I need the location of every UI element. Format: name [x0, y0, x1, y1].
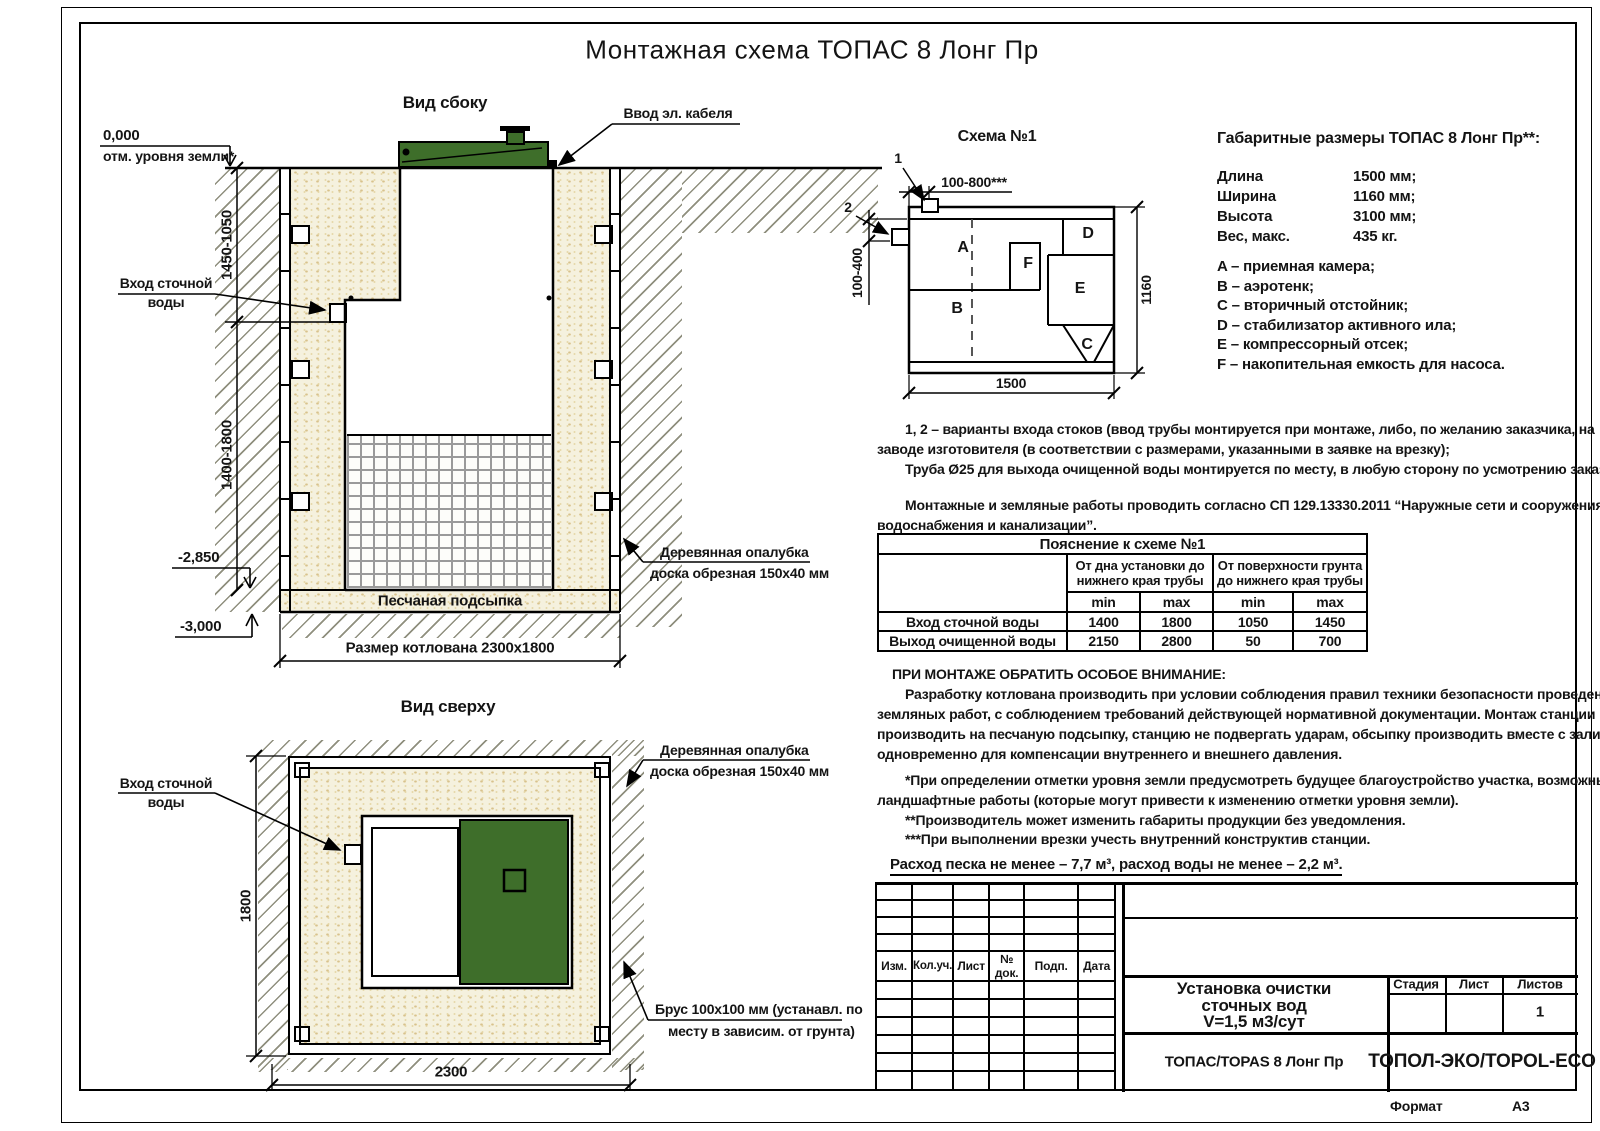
title-block-vline — [1445, 975, 1447, 1032]
dim-upper: 1450-1050 — [219, 210, 236, 280]
tv-beam-label: месту в зависим. от грунта) — [668, 1023, 855, 1039]
spec-label: Длина — [1217, 168, 1263, 185]
legend-item: D – стабилизатор активного ила; — [1217, 317, 1456, 334]
legend-item: B – аэротенк; — [1217, 278, 1314, 295]
drawing-sheet: Монтажная схема ТОПАС 8 Лонг Пр Пояснени… — [0, 0, 1600, 1131]
stage-header: Стадия — [1393, 977, 1439, 992]
schema-marker-1: 1 — [894, 150, 902, 166]
tv-dim-width: 2300 — [435, 1064, 468, 1081]
spec-label: Вес, макс. — [1217, 228, 1290, 245]
compartment-f: F — [1023, 255, 1033, 273]
legend-item: F – накопительная емкость для насоса. — [1217, 356, 1505, 373]
company-name: ТОПОЛ-ЭКО/TOPOL-ECO — [1368, 1051, 1596, 1073]
title-block-line — [1122, 917, 1578, 919]
attention-line: земляных работ, с соблюдением требований… — [877, 706, 1595, 722]
title-block-top-line — [875, 882, 1578, 885]
attention-line: Разработку котлована производить при усл… — [905, 686, 1600, 702]
level-mid: -2,850 — [178, 549, 219, 566]
doc-title-line: V=1,5 м3/сут — [1203, 1012, 1304, 1032]
schema-dim-top: 100-800*** — [941, 174, 1007, 190]
bedding-label: Песчаная подсыпка — [378, 593, 522, 610]
legend-item: E – компрессорный отсек; — [1217, 336, 1408, 353]
footnote-line: *При определении отметки уровня земли пр… — [905, 772, 1600, 788]
spec-value: 1160 мм; — [1353, 188, 1415, 205]
model-name: ТОПАС/TOPAS 8 Лонг Пр — [1165, 1054, 1344, 1071]
formwork-label: Деревянная опалубка — [660, 544, 809, 560]
note-line: Труба Ø25 для выхода очищенной воды монт… — [905, 461, 1600, 477]
tv-inlet-label: воды — [148, 794, 185, 810]
compartment-b: B — [951, 300, 962, 318]
note-line: водоснабжения и канализации”. — [877, 517, 1097, 533]
attention-line: производить на песчаную подсыпку, станци… — [877, 726, 1600, 742]
legend-item: C – вторичный отстойник; — [1217, 297, 1408, 314]
page-title: Монтажная схема ТОПАС 8 Лонг Пр — [585, 35, 1038, 66]
attention-line: одновременно для компенсации внутреннего… — [877, 746, 1342, 762]
title-block-line — [1122, 1032, 1578, 1035]
tv-beam-label: Брус 100x100 мм (устанавл. по — [655, 1001, 863, 1017]
schema-title: Схема №1 — [958, 128, 1037, 146]
specs-heading: Габаритные размеры ТОПАС 8 Лонг Пр**: — [1217, 130, 1540, 148]
formwork-label: доска обрезная 150x40 мм — [650, 565, 829, 581]
compartment-d: D — [1082, 225, 1093, 243]
tv-inlet-label: Вход сточной — [120, 775, 213, 791]
spec-label: Ширина — [1217, 188, 1276, 205]
footnote-line: ландшафтные работы (которые могут привес… — [877, 792, 1459, 808]
footnote-line: **Производитель может изменить габариты … — [905, 812, 1406, 828]
sheet-header: Лист — [1459, 977, 1489, 992]
schema-dim-right: 1160 — [1138, 275, 1154, 305]
format-label: Формат — [1390, 1098, 1442, 1114]
compartment-e: E — [1075, 280, 1085, 298]
ground-note: отм. уровня земли* — [103, 148, 234, 164]
schema-dim-left: 100-400 — [849, 248, 865, 298]
compartment-a: A — [957, 239, 968, 257]
spec-value: 1500 мм; — [1353, 168, 1416, 185]
top-view-title: Вид сверху — [401, 697, 496, 717]
legend-item: A – приемная камера; — [1217, 258, 1375, 275]
cable-label: Ввод эл. кабеля — [623, 105, 732, 121]
spec-label: Высота — [1217, 208, 1272, 225]
sheets-value: 1 — [1536, 1004, 1544, 1021]
pit-dim-label: Размер котлована 2300x1800 — [346, 640, 555, 657]
title-block-line — [1122, 975, 1578, 978]
attention-heading: ПРИ МОНТАЖЕ ОБРАТИТЬ ОСОБОЕ ВНИМАНИЕ: — [892, 666, 1226, 682]
tv-formwork-label: Деревянная опалубка — [660, 742, 809, 758]
note-line: заводе изготовителя (в соответствии с ра… — [877, 441, 1450, 457]
side-view-title: Вид сбоку — [403, 93, 488, 113]
sheets-header: Листов — [1517, 977, 1562, 992]
spec-value: 435 кг. — [1353, 228, 1397, 245]
level-bottom: -3,000 — [180, 618, 221, 635]
title-block-divider — [1122, 882, 1125, 1092]
note-line: 1, 2 – варианты входа стоков (ввод трубы… — [905, 421, 1595, 437]
zero-mark: 0,000 — [103, 127, 140, 144]
footnote-line: ***При выполнении врезки учесть внутренн… — [905, 831, 1370, 847]
note-line: Монтажные и земляные работы проводить со… — [905, 497, 1600, 513]
inlet-label: воды — [148, 294, 185, 310]
inlet-label: Вход сточной — [120, 275, 213, 291]
title-block-vline — [1502, 975, 1504, 1032]
compartment-c: C — [1081, 336, 1092, 354]
tv-dim-height: 1800 — [238, 890, 255, 923]
tv-formwork-label: доска обрезная 150x40 мм — [650, 763, 829, 779]
title-block-hline — [1387, 993, 1578, 995]
schema-marker-2: 2 — [844, 199, 852, 215]
consumption-note: Расход песка не менее – 7,7 м³, расход в… — [890, 856, 1342, 873]
format-value: А3 — [1512, 1098, 1530, 1114]
dim-lower: 1400-1800 — [219, 420, 236, 490]
schema-dim-bottom: 1500 — [996, 375, 1026, 391]
spec-value: 3100 мм; — [1353, 208, 1416, 225]
